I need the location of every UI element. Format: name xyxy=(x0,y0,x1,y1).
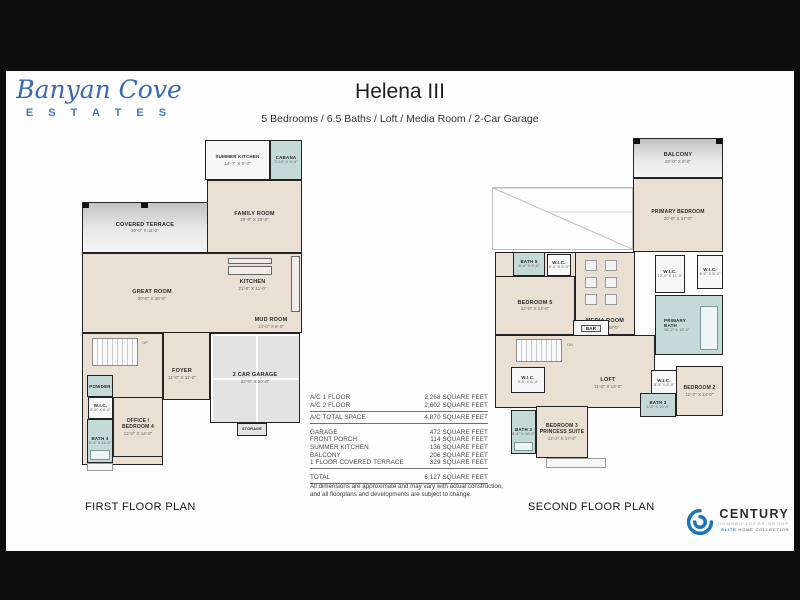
dn-label: DN xyxy=(563,343,577,348)
disclaimer-line-1: All dimensions are approximate and may v… xyxy=(310,483,505,491)
first-floor-plan: SUMMER KITCHEN 14'-7" X 9'-4" CABANA 5'-… xyxy=(80,136,304,472)
room-dims-label: 21'-0" X 11'-0" xyxy=(215,286,290,292)
great-room-label: GREAT ROOM 20'-6" X 20'-6" xyxy=(92,289,212,301)
century-name: CENTURY xyxy=(719,508,789,521)
room-dims-label: 6'-0" X 5'-0" xyxy=(549,265,570,270)
media-seat xyxy=(585,277,597,288)
media-seat xyxy=(605,260,617,271)
media-seat xyxy=(605,294,617,305)
table-row-total: TOTAL6,127 SQUARE FEET xyxy=(310,474,488,482)
table-divider xyxy=(310,468,488,469)
row-value: 2,268 SQUARE FEET xyxy=(424,394,488,402)
lower-roof-outline xyxy=(546,458,606,468)
room-powder: POWDER xyxy=(87,375,113,397)
century-logo: CENTURY HOMEBUILDERS GROUP ELITE HOME CO… xyxy=(686,508,789,536)
elite-text: ELITE xyxy=(721,527,736,532)
balcony-post xyxy=(633,138,640,144)
room-dims-label: 5'-4" X 11'-0" xyxy=(89,441,112,446)
room-storage: STORAGE xyxy=(237,423,267,436)
stairs-dn-label: DN xyxy=(563,343,577,348)
bathtub xyxy=(700,306,718,350)
room-foyer-area xyxy=(163,333,210,400)
row-label: TOTAL xyxy=(310,474,330,482)
banyan-cove-logo: Banyan Cove E S T A T E S xyxy=(10,76,188,119)
room-dims-label: 20'-0" X 20'-0" xyxy=(240,217,268,223)
kitchen-label: KITCHEN 21'-0" X 11'-0" xyxy=(215,279,290,291)
century-logo-text: CENTURY HOMEBUILDERS GROUP ELITE HOME CO… xyxy=(718,508,789,533)
row-label: A/C TOTAL SPACE xyxy=(310,414,366,422)
room-dims-label: 12'-0" X 14'-0" xyxy=(124,431,152,437)
banyan-cove-script-text: Banyan Cove xyxy=(10,76,188,104)
plan-title: Helena III xyxy=(230,80,570,104)
room-dims-label: 22'-0" X 20'-0" xyxy=(241,379,269,385)
room-dims-label: 6'-2" X 5'-0" xyxy=(700,272,721,277)
room-dims-label: 20'-6" X 20'-6" xyxy=(92,296,212,302)
room-dims-label: 6'-4" X 9'-0" xyxy=(519,264,540,269)
table-row: 1 FLOOR COVERED TERRACE329 SQUARE FEET xyxy=(310,459,488,467)
room-dims-label: 20'-0" X 8'-0" xyxy=(665,159,691,165)
room-dims-label: 5'-4" X 10'-0" xyxy=(512,432,535,437)
room-dims-label: 5'-10" X 9'-4" xyxy=(274,160,297,165)
room-dims-label: 11'-0" X 13'-0" xyxy=(578,384,638,390)
row-label: 1 FLOOR COVERED TERRACE xyxy=(310,459,404,467)
row-value: 136 SQUARE FEET xyxy=(430,444,488,452)
room-name-label: BAR xyxy=(581,325,601,332)
stairs xyxy=(92,338,138,366)
roof-diagonal-lines xyxy=(493,188,632,249)
loft-label: LOFT 11'-0" X 13'-0" xyxy=(578,377,638,389)
disclaimer-line-2: and all floorplans and developments are … xyxy=(310,491,505,499)
room-bath-3: BATH 3 5'-4" X 10'-0" xyxy=(511,410,536,454)
table-row: A/C 1 FLOOR2,268 SQUARE FEET xyxy=(310,394,488,402)
room-bar: BAR xyxy=(573,320,609,336)
plan-subtitle: 5 Bedrooms / 6.5 Baths / Loft / Media Ro… xyxy=(230,113,570,125)
media-seats xyxy=(585,260,615,305)
home-collection-text: HOME COLLECTION xyxy=(737,527,790,532)
room-wic-first-floor: W.I.C. 5'-8" X 6'-0" xyxy=(88,397,113,419)
room-dims-label: 8'-4" X 5'-0" xyxy=(654,383,675,388)
room-dims-label: 20'-8" X 17'-0" xyxy=(664,216,692,222)
side-stoop xyxy=(87,463,113,471)
room-dims-label: 12'-0" X 11'-0" xyxy=(658,274,683,279)
media-seat xyxy=(585,260,597,271)
row-value: 329 SQUARE FEET xyxy=(430,459,488,467)
row-value: 6,127 SQUARE FEET xyxy=(424,474,488,482)
row-value: 206 SQUARE FEET xyxy=(430,452,488,460)
century-collection-tagline: ELITE HOME COLLECTION xyxy=(721,527,789,533)
room-dims-label: 9'-0" X 6'-4" xyxy=(518,380,539,385)
room-bedroom-3-princess-suite: BEDROOM 3 PRINCESS SUITE 12'-2" X 17'-2" xyxy=(536,406,588,458)
room-bath-5: BATH 5 6'-4" X 9'-0" xyxy=(513,252,545,276)
up-label: UP xyxy=(138,341,152,346)
room-dims-label: 14'-7" X 9'-4" xyxy=(225,161,251,167)
room-wic-primary-1: W.I.C. 12'-0" X 11'-0" xyxy=(655,255,685,293)
table-row: A/C 2 FLOOR2,602 SQUARE FEET xyxy=(310,402,488,410)
century-swirl-icon xyxy=(686,508,714,536)
kitchen-island-counter xyxy=(228,258,272,264)
row-label: A/C 2 FLOOR xyxy=(310,402,350,410)
table-row: BALCONY206 SQUARE FEET xyxy=(310,452,488,460)
table-divider xyxy=(310,423,488,424)
room-wic-left: W.I.C. 9'-0" X 6'-4" xyxy=(511,367,545,393)
table-row: A/C TOTAL SPACE4,870 SQUARE FEET xyxy=(310,414,488,422)
header: Helena III 5 Bedrooms / 6.5 Baths / Loft… xyxy=(230,80,570,125)
room-garage: 2 CAR GARAGE 22'-0" X 20'-0" xyxy=(210,333,300,423)
media-seat xyxy=(585,294,597,305)
room-balcony: BALCONY 20'-0" X 8'-0" xyxy=(633,138,723,178)
row-label: SUMMER KITCHEN xyxy=(310,444,369,452)
roof-outline xyxy=(492,187,633,250)
room-covered-terrace: COVERED TERRACE 30'-0" X 11'-2" xyxy=(82,202,208,253)
row-label: GARAGE xyxy=(310,429,338,437)
foyer-label: FOYER 11'-0" X 11'-0" xyxy=(152,368,212,380)
second-floor-caption: SECOND FLOOR PLAN xyxy=(528,501,655,513)
table-row: GARAGE472 SQUARE FEET xyxy=(310,429,488,437)
room-wic-bedroom5: W.I.C. 6'-0" X 5'-0" xyxy=(547,254,571,276)
terrace-post xyxy=(82,202,89,208)
row-label: FRONT PORCH xyxy=(310,436,357,444)
stairs xyxy=(516,339,562,362)
room-summer-kitchen: SUMMER KITCHEN 14'-7" X 9'-4" xyxy=(205,140,270,180)
row-value: 4,870 SQUARE FEET xyxy=(424,414,488,422)
row-value: 2,602 SQUARE FEET xyxy=(424,402,488,410)
media-seat xyxy=(605,277,617,288)
kitchen-counter xyxy=(291,256,300,312)
room-dims-label: 16'-2" X 12'-0" xyxy=(664,328,689,333)
room-dims-label: 14'-0" X 6'-0" xyxy=(240,324,302,330)
room-bedroom-5: BEDROOM 5 12'-0" X 14'-0" xyxy=(495,276,575,335)
table-divider xyxy=(310,411,488,412)
row-label: BALCONY xyxy=(310,452,341,460)
room-name-label: POWDER xyxy=(89,384,110,389)
room-dims-label: 11'-2" X 14'-0" xyxy=(685,392,713,398)
room-dims-label: 30'-0" X 11'-2" xyxy=(131,228,159,234)
disclaimer-text: All dimensions are approximate and may v… xyxy=(310,483,505,499)
brochure-page: Banyan Cove E S T A T E S Helena III 5 B… xyxy=(0,0,800,600)
table-row: FRONT PORCH114 SQUARE FEET xyxy=(310,436,488,444)
room-primary-bedroom: PRIMARY BEDROOM 20'-8" X 17'-0" xyxy=(633,178,723,252)
row-label: A/C 1 FLOOR xyxy=(310,394,350,402)
room-name-label: STORAGE xyxy=(242,427,262,432)
second-floor-plan: BALCONY 20'-0" X 8'-0" PRIMARY BEDROOM 2… xyxy=(490,136,726,472)
room-dims-label: 11'-0" X 11'-0" xyxy=(152,375,212,381)
room-bath-4: BATH 4 5'-4" X 11'-0" xyxy=(87,419,113,463)
room-office-bedroom-4: OFFICE / BEDROOM 4 12'-0" X 14'-0" xyxy=(113,397,163,457)
table-row: SUMMER KITCHEN136 SQUARE FEET xyxy=(310,444,488,452)
room-dims-label: 12'-0" X 14'-0" xyxy=(521,306,549,312)
room-bath-2: BATH 2 6'-0" X 10'-0" xyxy=(640,393,676,417)
bathtub xyxy=(514,442,533,451)
row-value: 472 SQUARE FEET xyxy=(430,429,488,437)
room-primary-bath: PRIMARY BATH 16'-2" X 12'-0" xyxy=(655,295,723,355)
room-dims-label: 5'-8" X 6'-0" xyxy=(90,408,111,413)
balcony-post xyxy=(716,138,723,144)
first-floor-caption: FIRST FLOOR PLAN xyxy=(85,501,196,513)
bathtub xyxy=(90,450,110,460)
terrace-post xyxy=(141,202,148,208)
room-bedroom-2: BEDROOM 2 11'-2" X 14'-0" xyxy=(676,366,723,416)
stairs-up-label: UP xyxy=(138,341,152,346)
room-cabana: CABANA 5'-10" X 9'-4" xyxy=(270,140,302,180)
room-family-room: FAMILY ROOM 20'-0" X 20'-0" xyxy=(207,180,302,253)
estates-text: E S T A T E S xyxy=(10,107,188,119)
kitchen-island xyxy=(228,266,272,275)
row-value: 114 SQUARE FEET xyxy=(430,436,488,444)
area-table: A/C 1 FLOOR2,268 SQUARE FEET A/C 2 FLOOR… xyxy=(310,394,488,486)
room-dims-label: 6'-0" X 10'-0" xyxy=(646,405,669,410)
mud-room-label: MUD ROOM 14'-0" X 6'-0" xyxy=(240,317,302,329)
room-dims-label: 12'-2" X 17'-2" xyxy=(548,436,576,442)
room-wic-primary-2: W.I.C. 6'-2" X 5'-0" xyxy=(697,255,723,289)
